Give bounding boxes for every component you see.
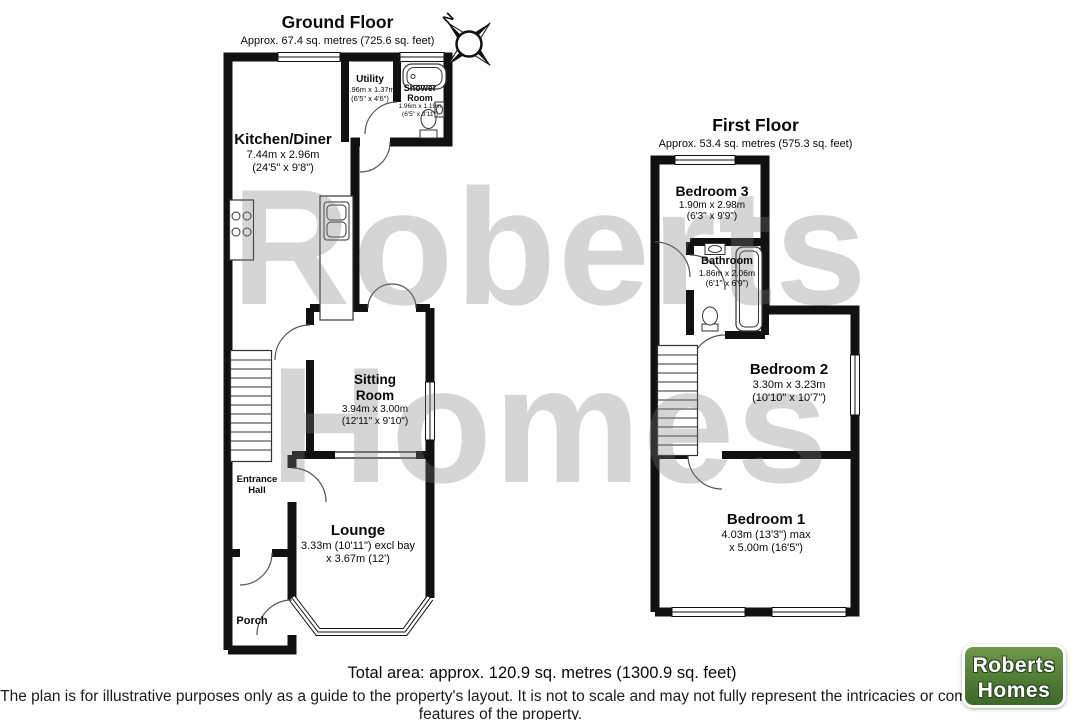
room-label-bedroom-1: Bedroom 1 4.03m (13'3") max x 5.00m (16'… <box>699 511 833 555</box>
window <box>675 156 735 165</box>
room-name: Room <box>392 94 448 104</box>
room-dims-imperial: (6'1" x 6'9") <box>686 278 768 288</box>
room-dims-line1: 3.33m (10'11") excl bay <box>290 540 426 553</box>
ground-floor-area: Approx. 67.4 sq. metres (725.6 sq. feet) <box>215 35 460 47</box>
room-dims-metric: 1.86m x 2.06m <box>686 268 768 278</box>
room-name: Bedroom 1 <box>699 511 833 529</box>
toilet-icon <box>702 307 718 331</box>
room-label-kitchen-diner: Kitchen/Diner 7.44m x 2.96m (24'5" x 9'8… <box>198 131 368 175</box>
compass-rose-icon: N <box>438 6 500 72</box>
room-name: Entrance <box>228 474 286 485</box>
room-dims-imperial: (10'10" x 10'7") <box>722 392 856 405</box>
room-name: Kitchen/Diner <box>198 131 368 149</box>
room-dims-line2: x 3.67m (12') <box>290 553 426 566</box>
compass-north-label: N <box>440 10 457 27</box>
room-name: Room <box>312 388 438 404</box>
first-floor-title-block: First Floor Approx. 53.4 sq. metres (575… <box>633 115 878 150</box>
room-dims-imperial: (6'5" x 3'11") <box>392 111 448 119</box>
room-label-bedroom-2: Bedroom 2 3.30m x 3.23m (10'10" x 10'7") <box>722 361 856 405</box>
room-dims-metric: 7.44m x 2.96m <box>198 149 368 162</box>
stairs <box>231 351 272 462</box>
room-dims-imperial: (12'11" x 9'10") <box>312 416 438 428</box>
room-dims-metric: 1.96m x 1.19m <box>392 103 448 111</box>
roberts-homes-logo: Roberts Homes <box>962 644 1066 708</box>
room-name: Bedroom 2 <box>722 361 856 379</box>
ground-floor-title: Ground Floor <box>215 12 460 33</box>
first-floor-area: Approx. 53.4 sq. metres (575.3 sq. feet) <box>633 138 878 150</box>
room-label-entrance-hall: Entrance Hall <box>228 474 286 496</box>
room-name: Porch <box>229 615 275 628</box>
kitchen-sink-icon <box>320 196 353 320</box>
room-dims-metric: 1.90m x 2.98m <box>650 200 774 212</box>
room-label-sitting-room: Sitting Room 3.94m x 3.00m (12'11" x 9'1… <box>312 372 438 427</box>
room-dims-metric: 3.94m x 3.00m <box>312 404 438 416</box>
total-area-text: Total area: approx. 120.9 sq. metres (13… <box>0 664 1084 683</box>
room-name: Bathroom <box>686 255 768 268</box>
room-label-porch: Porch <box>229 615 275 628</box>
room-label-bedroom-3: Bedroom 3 1.90m x 2.98m (6'3" x 9'9") <box>650 183 774 223</box>
window <box>278 53 340 62</box>
first-floor-title: First Floor <box>633 115 878 136</box>
room-name: Hall <box>228 485 286 496</box>
basin-icon <box>705 244 725 255</box>
stove-icon <box>230 200 254 260</box>
room-name: Bedroom 3 <box>650 183 774 200</box>
window <box>672 608 745 617</box>
logo-line1: Roberts <box>965 653 1063 678</box>
logo-line2: Homes <box>965 678 1063 703</box>
room-dims-line1: 4.03m (13'3") max <box>699 529 833 542</box>
room-label-bathroom: Bathroom 1.86m x 2.06m (6'1" x 6'9") <box>686 255 768 288</box>
stairs <box>658 346 698 456</box>
ground-floor-title-block: Ground Floor Approx. 67.4 sq. metres (72… <box>215 12 460 47</box>
room-label-shower-room: Shower Room 1.96m x 1.19m (6'5" x 3'11") <box>392 84 448 119</box>
floorplan-page: Ground Floor Approx. 67.4 sq. metres (72… <box>0 0 1084 720</box>
room-dims-imperial: (6'3" x 9'9") <box>650 211 774 223</box>
disclaimer-text: The plan is for illustrative purposes on… <box>0 688 1001 720</box>
room-dims-imperial: (24'5" x 9'8") <box>198 162 368 175</box>
room-dims-metric: 3.30m x 3.23m <box>722 379 856 392</box>
room-name: Sitting <box>312 372 438 388</box>
room-label-lounge: Lounge 3.33m (10'11") excl bay x 3.67m (… <box>290 522 426 566</box>
room-dims-line2: x 5.00m (16'5") <box>699 542 833 555</box>
room-name: Lounge <box>290 522 426 540</box>
window <box>772 608 846 617</box>
